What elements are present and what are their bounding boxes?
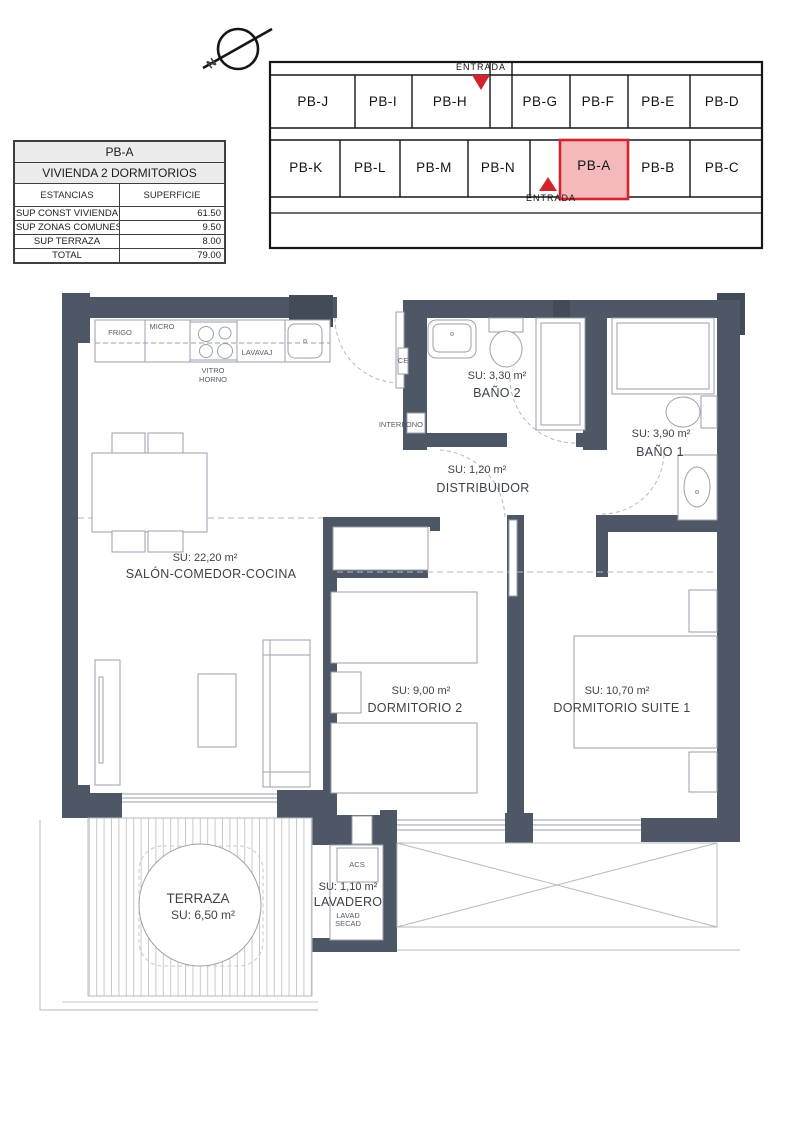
salon-furniture (92, 433, 310, 787)
unit-label: PB-I (369, 94, 397, 109)
suite-name: DORMITORIO SUITE 1 (553, 701, 690, 715)
laundry-name: LAVADERO (314, 895, 383, 909)
ce-label: CE (398, 356, 408, 365)
salon-area: SU: 22,20 m² (173, 552, 238, 564)
coffee-table (198, 674, 236, 747)
chair (148, 433, 183, 454)
entrance-door-arc (335, 318, 400, 383)
unit-label: PB-N (481, 160, 515, 175)
entrance-marker-top: ENTRADA (456, 62, 506, 90)
dorm2-nightstand (331, 672, 361, 713)
north-letter: N (204, 55, 219, 71)
crossed-area (397, 843, 740, 950)
acs-label: ACS (349, 860, 364, 869)
key-plan-unit-labels: PB-J PB-I PB-H PB-G PB-F PB-E PB-D PB-K … (289, 94, 739, 175)
terrace-area: SU: 6,50 m² (171, 908, 235, 922)
suite-nightstand-bottom (689, 752, 717, 792)
chair (112, 433, 145, 454)
dorm2-name: DORMITORIO 2 (367, 701, 462, 715)
unit-label: PB-J (297, 94, 328, 109)
frigo-label: FRIGO (108, 328, 132, 337)
bath1-basin (684, 467, 710, 507)
hall-area: SU: 1,20 m² (448, 464, 507, 476)
dorm2-furniture (331, 527, 477, 793)
dining-table (92, 453, 207, 532)
unit-label: PB-E (641, 94, 675, 109)
dorm2-area: SU: 9,00 m² (392, 685, 451, 697)
bath1-toilet (666, 397, 700, 427)
suite-door-arc (602, 452, 664, 514)
floorplan-page: PB-A VIVIENDA 2 DORMITORIOS ESTANCIAS SU… (0, 0, 800, 1133)
chair (112, 531, 145, 552)
laundry-area: SU: 1,10 m² (319, 881, 378, 893)
unit-label: PB-K (289, 160, 323, 175)
bath1-fixtures (612, 318, 717, 520)
entrada-top-label: ENTRADA (456, 62, 506, 72)
unit-label-highlighted: PB-A (577, 158, 611, 173)
bath2-area: SU: 3,30 m² (468, 370, 527, 382)
kitchen-counter (95, 320, 330, 362)
entrada-bottom-label: ENTRADA (526, 193, 576, 203)
dorm2-wardrobe (333, 527, 428, 570)
bath2-name: BAÑO 2 (473, 386, 521, 400)
suite-nightstand-top (689, 590, 717, 632)
unit-label: PB-G (522, 94, 557, 109)
floorplan-drawing: N (0, 0, 800, 1133)
dorm2-bed-2 (331, 723, 477, 793)
lavadero-door (352, 816, 372, 844)
vitro-label: VITRO (202, 366, 225, 375)
terrace-name: TERRAZA (166, 891, 229, 906)
key-plan (270, 62, 762, 248)
unit-label: PB-D (705, 94, 739, 109)
horno-label: HORNO (199, 375, 227, 384)
unit-label: PB-H (433, 94, 467, 109)
unit-label: PB-M (416, 160, 452, 175)
lavavaj-label: LAVAVAJ (242, 348, 273, 357)
bath1-toilet-tank (701, 396, 717, 428)
unit-label: PB-B (641, 160, 675, 175)
hall-name: DISTRIBUIDOR (436, 481, 529, 495)
interfono-label: INTERFONO (379, 420, 423, 429)
bath1-name: BAÑO 1 (636, 445, 684, 459)
bath1-area: SU: 3,90 m² (632, 428, 691, 440)
dorm2-door-leaf (509, 520, 517, 596)
bath2-toilet (490, 331, 522, 367)
tv (99, 677, 103, 763)
micro-label: MICRO (150, 322, 175, 331)
unit-label: PB-L (354, 160, 386, 175)
chair (148, 531, 183, 552)
bath2-toilet-tank (489, 318, 523, 332)
secad-label: SECAD (335, 919, 361, 928)
dorm2-bed-1 (331, 592, 477, 663)
salon-name: SALÓN-COMEDOR-COCINA (126, 566, 297, 581)
unit-label: PB-F (582, 94, 615, 109)
suite-area: SU: 10,70 m² (585, 685, 650, 697)
north-compass-icon: N (203, 29, 272, 72)
unit-label: PB-C (705, 160, 739, 175)
